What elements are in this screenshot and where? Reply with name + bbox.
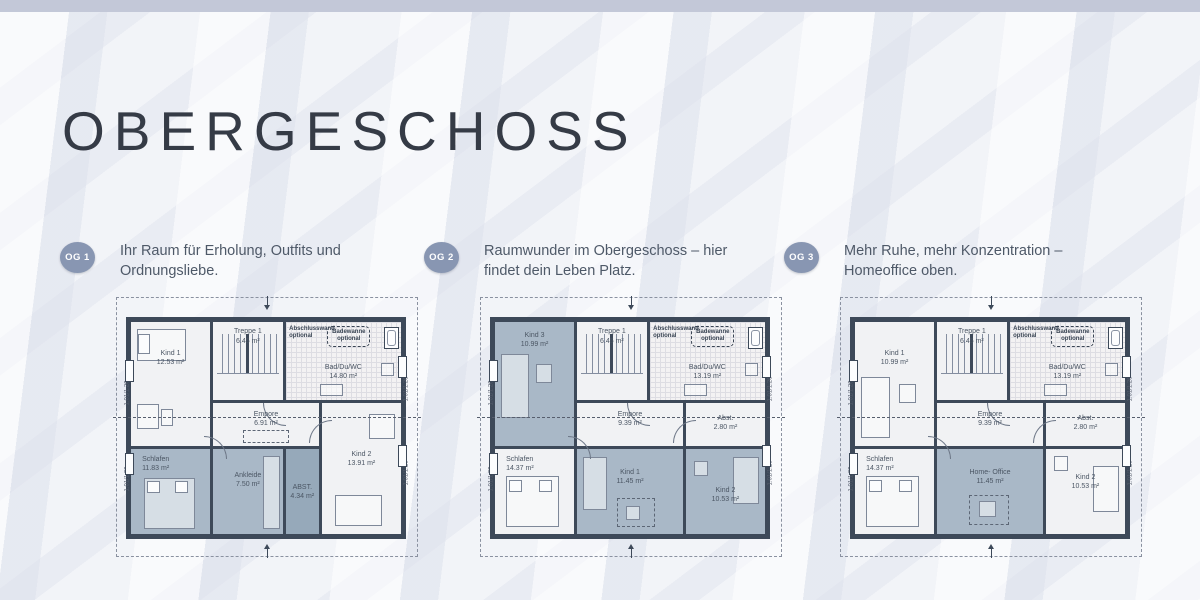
bathtub (1108, 327, 1123, 349)
room-treppe: Treppe 1 6.45 m² (577, 322, 647, 400)
og1-badge: OG 1 (60, 242, 95, 273)
badewanne-note: Badewanne optional (327, 326, 370, 347)
dim-label: 1.01/1.26 (767, 376, 773, 401)
dimension-arrowhead (628, 305, 634, 310)
room-schlafen: Schlafen 11.83 m² (131, 449, 210, 534)
room-label: Kind 1 12.53 m² (131, 349, 210, 367)
sink (1044, 384, 1067, 395)
pillow (509, 480, 522, 492)
room-label: Kind 3 10.99 m² (495, 331, 574, 349)
dim-label: 1.01/1.26 (403, 376, 409, 401)
room-label: Home- Office 11.45 m² (937, 468, 1043, 486)
room-label: Kind 2 10.53 m² (686, 486, 765, 504)
chair (626, 506, 641, 520)
knee-height-dashed-line (837, 417, 1145, 418)
room-schlafen: Schlafen 14.37 m² (855, 449, 934, 534)
window (398, 356, 407, 378)
window (849, 453, 858, 475)
room-kind1: Kind 1 10.99 m² (855, 322, 934, 446)
dim-label: 1.01/1.26 (1127, 376, 1133, 401)
window (1122, 356, 1131, 378)
room-label: Empore 9.39 m² (937, 410, 1043, 428)
room-kind2: Kind 2 13.91 m² (322, 403, 401, 534)
room-empore: Empore 6.91 m² (213, 403, 319, 446)
wardrobe (263, 456, 280, 529)
optional-void-outline (243, 430, 289, 443)
room-label: Schlafen 11.83 m² (131, 455, 210, 473)
window (849, 360, 858, 382)
nightstand (536, 364, 552, 383)
dimension-arrowhead (264, 544, 270, 549)
abschlusswand-note: Abschlusswand optional (289, 326, 324, 341)
bathtub (748, 327, 763, 349)
room-abst: Abst. 2.80 m² (1046, 403, 1125, 446)
room-abst: Abst. 2.80 m² (686, 403, 765, 446)
og1-floorplan: Kind 1 12.53 m² Treppe 1 6.45 m² Abschlu… (116, 297, 418, 557)
room-label: Kind 2 13.91 m² (322, 450, 401, 468)
dim-label: 1.01/1.26 (125, 380, 131, 405)
og3-plan-body: Kind 1 10.99 m² Treppe 1 6.45 m² Abschlu… (850, 317, 1130, 539)
dimension-arrowhead (264, 305, 270, 310)
room-label: Treppe 1 6.45 m² (213, 327, 283, 345)
window (125, 453, 134, 475)
room-empore: Empore 9.39 m² (937, 403, 1043, 446)
bed (335, 495, 383, 526)
room-kind2: Kind 2 10.53 m² (1046, 449, 1125, 534)
badewanne-note: Badewanne optional (1051, 326, 1094, 347)
room-label: Bad/Du/WC 13.19 m² (1010, 363, 1125, 381)
sink (684, 384, 707, 395)
room-kind2: Kind 2 10.53 m² (686, 449, 765, 534)
room-label: Bad/Du/WC 14.80 m² (286, 363, 401, 381)
og2-badge: OG 2 (424, 242, 459, 273)
room-treppe: Treppe 1 6.45 m² (937, 322, 1007, 400)
room-kind1: Kind 1 12.53 m² (131, 322, 210, 446)
room-ankleide: Ankleide 7.50 m² (213, 449, 283, 534)
og2-plan-body: Kind 3 10.99 m² Treppe 1 6.45 m² Abschlu… (490, 317, 770, 539)
room-label: Empore 9.39 m² (577, 410, 683, 428)
og3-floorplan: Kind 1 10.99 m² Treppe 1 6.45 m² Abschlu… (840, 297, 1142, 557)
nightstand (899, 384, 915, 403)
window (762, 356, 771, 378)
room-empore: Empore 9.39 m² (577, 403, 683, 446)
floorplan-variant-og3: OG 3 Mehr Ruhe, mehr Konzentration – Hom… (784, 241, 1144, 557)
page-title: OBERGESCHOSS (62, 99, 638, 163)
pillow (147, 481, 160, 493)
chair (979, 501, 996, 517)
variant-header: OG 3 Mehr Ruhe, mehr Konzentration – Hom… (784, 241, 1144, 291)
abschlusswand-note: Abschlusswand optional (653, 326, 688, 341)
room-treppe: Treppe 1 6.45 m² (213, 322, 283, 400)
room-homeoffice: Home- Office 11.45 m² (937, 449, 1043, 534)
room-label: Kind 1 11.45 m² (577, 468, 683, 486)
dimension-arrowhead (988, 544, 994, 549)
floorplan-variant-og1: OG 1 Ihr Raum für Erholung, Outfits und … (60, 241, 420, 557)
top-accent-bar (0, 0, 1200, 12)
window (125, 360, 134, 382)
nightstand (694, 461, 709, 477)
room-label: Kind 1 10.99 m² (855, 349, 934, 367)
knee-height-dashed-line (113, 417, 421, 418)
room-label: Schlafen 14.37 m² (855, 455, 934, 473)
pillow (539, 480, 552, 492)
variant-header: OG 2 Raumwunder im Obergeschoss – hier f… (424, 241, 784, 291)
og3-description: Mehr Ruhe, mehr Konzentration – Homeoffi… (844, 241, 1099, 281)
og3-badge: OG 3 (784, 242, 819, 273)
dimension-arrowhead (628, 544, 634, 549)
window (489, 360, 498, 382)
room-bad: Abschlusswand optional Badewanne optiona… (1010, 322, 1125, 400)
dim-label: 1.01/1.26 (489, 380, 495, 405)
room-label: Kind 2 10.53 m² (1046, 473, 1125, 491)
bed (861, 377, 890, 438)
sink (320, 384, 343, 395)
og1-description: Ihr Raum für Erholung, Outfits und Ordnu… (120, 241, 375, 281)
room-label: ABST. 4.34 m² (286, 483, 319, 501)
dimension-arrowhead (988, 305, 994, 310)
variant-header: OG 1 Ihr Raum für Erholung, Outfits und … (60, 241, 420, 291)
window (489, 453, 498, 475)
og2-description: Raumwunder im Obergeschoss – hier findet… (484, 241, 739, 281)
window (1122, 445, 1131, 467)
pillow (175, 481, 188, 493)
room-label: Ankleide 7.50 m² (213, 471, 283, 489)
knee-height-dashed-line (477, 417, 785, 418)
window (398, 445, 407, 467)
floorplan-variant-og2: OG 2 Raumwunder im Obergeschoss – hier f… (424, 241, 784, 557)
og1-plan-body: Kind 1 12.53 m² Treppe 1 6.45 m² Abschlu… (126, 317, 406, 539)
abschlusswand-note: Abschlusswand optional (1013, 326, 1048, 341)
nightstand (1054, 456, 1069, 472)
og2-floorplan: Kind 3 10.99 m² Treppe 1 6.45 m² Abschlu… (480, 297, 782, 557)
pillow (869, 480, 882, 492)
room-abst: ABST. 4.34 m² (286, 449, 319, 534)
bathtub (384, 327, 399, 349)
badewanne-note: Badewanne optional (691, 326, 734, 347)
room-label: Treppe 1 6.45 m² (937, 327, 1007, 345)
bed (501, 354, 528, 418)
room-label: Empore 6.91 m² (213, 410, 319, 428)
room-kind1-bottom: Kind 1 11.45 m² (577, 449, 683, 534)
room-schlafen: Schlafen 14.37 m² (495, 449, 574, 534)
room-label: Schlafen 14.37 m² (495, 455, 574, 473)
pillow (899, 480, 912, 492)
room-label: Treppe 1 6.45 m² (577, 327, 647, 345)
window (762, 445, 771, 467)
dim-label: 1.01/1.26 (849, 380, 855, 405)
room-bad: Abschlusswand optional Badewanne optiona… (650, 322, 765, 400)
room-label: Bad/Du/WC 13.19 m² (650, 363, 765, 381)
room-kind3: Kind 3 10.99 m² (495, 322, 574, 446)
room-bad: Abschlusswand optional Badewanne optiona… (286, 322, 401, 400)
